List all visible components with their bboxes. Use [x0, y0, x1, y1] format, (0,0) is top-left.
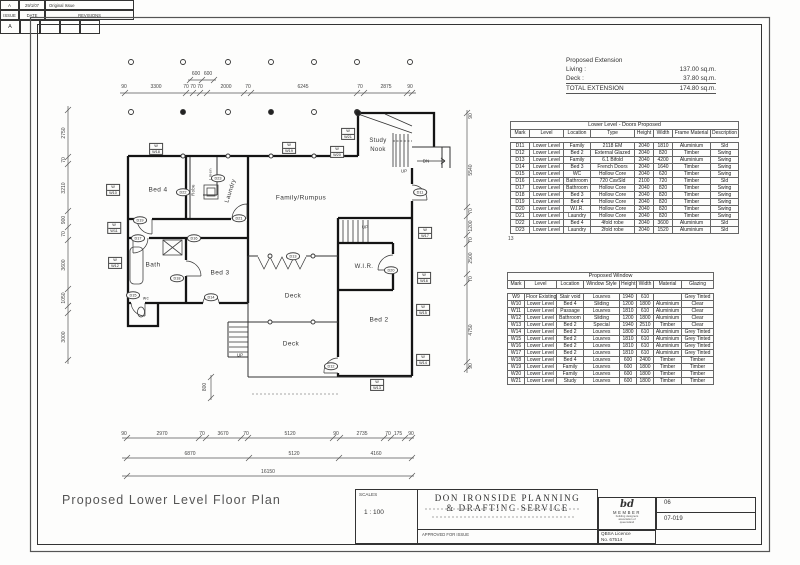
bda-logo-icon: bd: [599, 499, 655, 510]
plan-title: Proposed Lower Level Floor Plan: [62, 493, 281, 507]
table-row-cell: Hollow Core: [591, 192, 635, 199]
table-header-cell: Location: [557, 281, 584, 289]
table-row-cell: Timber: [654, 357, 682, 364]
table-row-cell: Louvres: [584, 294, 620, 301]
table-row-cell: WC: [564, 171, 591, 178]
table-row-cell: Swing: [711, 206, 739, 213]
table-row-cell: Passage: [557, 308, 584, 315]
table-row-cell: Lower Level: [530, 185, 564, 192]
room-label-study: Study: [369, 138, 386, 144]
door-count-note: 13: [508, 236, 514, 242]
table-row-cell: 1810: [654, 143, 673, 150]
table-row-cell: W12: [508, 315, 525, 322]
window-tag-id: W12: [109, 264, 121, 269]
qbsa-licence-box: QBSA Licence No. 67514: [598, 530, 656, 544]
table-row-cell: 1810: [620, 343, 637, 350]
table-row-cell: 2040: [635, 227, 654, 234]
extension-row-total: TOTAL EXTENSION 174.80 sq.m.: [566, 84, 716, 94]
table-header-cell: Height: [635, 130, 654, 138]
table-row-cell: Grey Tinted: [682, 294, 714, 301]
table-row-cell: Clear: [682, 301, 714, 308]
stair-direction-label: DN: [423, 159, 430, 164]
table-row-cell: Lower Level: [525, 336, 557, 343]
table-row-cell: 2400: [637, 357, 654, 364]
table-row-cell: Sld: [711, 220, 739, 227]
dimension-label: 3210: [61, 182, 67, 193]
table-row-cell: W10: [508, 301, 525, 308]
dimension-label: 70: [61, 231, 67, 237]
table-title-cell: Proposed Window: [508, 273, 714, 281]
dimension-label: 1200: [468, 220, 474, 231]
table-row: W21Lower LevelStudyLouvres6001800TimberT…: [508, 378, 714, 385]
dimension-label: 3000: [61, 331, 67, 342]
table-row-cell: Lower Level: [530, 171, 564, 178]
table-row-cell: Grey Tinted: [682, 336, 714, 343]
table-row: D19Lower LevelBed 4Hollow Core2040820Tim…: [511, 199, 739, 206]
room-label-family-rumpus: Family/Rumpus: [276, 195, 326, 202]
table-row: D17Lower LevelBathroomHollow Core2040820…: [511, 185, 739, 192]
table-row-cell: Louvres: [584, 329, 620, 336]
table-title: Proposed Window: [508, 273, 714, 281]
table-row-cell: Louvres: [584, 343, 620, 350]
table-row-cell: 3600: [654, 220, 673, 227]
door-tag-d15: D15: [126, 291, 140, 299]
table-row-cell: Timber: [682, 357, 714, 364]
table-row-cell: 820: [654, 206, 673, 213]
table-row-cell: 2040: [635, 164, 654, 171]
table-row: W17Lower LevelBed 2Louvres1810610Alumini…: [508, 350, 714, 357]
table-row-cell: Swing: [711, 171, 739, 178]
pencil-note: [432, 516, 576, 518]
dimension-label: 5120: [284, 431, 295, 437]
table-row-cell: D16: [511, 178, 530, 185]
scales-label: SCALES: [356, 490, 417, 497]
table-row-cell: 4200: [654, 157, 673, 164]
extension-value: 37.80 sq.m.: [683, 74, 716, 83]
extension-value: 137.00 sq.m.: [680, 65, 716, 74]
table-row-cell: W17: [508, 350, 525, 357]
dimension-label: 70: [468, 276, 474, 282]
door-tag-d12: D12: [324, 362, 338, 370]
table-row-cell: 6.1 Bifold: [591, 157, 635, 164]
table-row-cell: Family: [557, 371, 584, 378]
table-row-cell: Family: [564, 157, 591, 164]
table-row-cell: Bed 2: [557, 343, 584, 350]
table-row-cell: Bed 3: [564, 164, 591, 171]
table-row-cell: Louvres: [584, 364, 620, 371]
door-tag-d16: D16: [187, 234, 201, 242]
table-row: W19Lower LevelFamilyLouvres6001800Timber…: [508, 364, 714, 371]
room-label-w-i-r-: W.I.R.: [355, 264, 374, 270]
table-row-cell: 2040: [635, 150, 654, 157]
table-row-cell: Timber: [673, 185, 711, 192]
table-row-cell: Lower Level: [525, 357, 557, 364]
dimension-label: 70: [199, 431, 205, 437]
table-title-cell: Lower Level - Doors Proposed: [511, 122, 739, 130]
table-row-cell: Timber: [673, 178, 711, 185]
table-row-cell: Swing: [711, 213, 739, 220]
table-row-cell: Swing: [711, 192, 739, 199]
pencil-note: [425, 508, 581, 510]
window-tag-id: W10: [107, 191, 119, 196]
table-row-cell: Timber: [654, 378, 682, 385]
dimension-label: 900: [61, 216, 67, 224]
table-row-cell: 720: [654, 178, 673, 185]
table-row-cell: D11: [511, 143, 530, 150]
table-row: D14Lower LevelBed 3French Doors20401640T…: [511, 164, 739, 171]
table-row: D21Lower LevelLaundryHollow Core2040820T…: [511, 213, 739, 220]
table-row-cell: 2100: [635, 178, 654, 185]
table-row: D13Lower LevelFamily6.1 Bifold20404200Al…: [511, 157, 739, 164]
dimension-label: 600: [204, 71, 212, 77]
table-row-cell: 600: [620, 364, 637, 371]
extension-summary: Proposed Extension Living : 137.00 sq.m.…: [566, 56, 716, 94]
door-tag-d17: D17: [131, 234, 145, 242]
window-tag-id: W13: [371, 386, 383, 391]
table-row-cell: Louvres: [584, 308, 620, 315]
table-row-cell: 610: [637, 350, 654, 357]
table-row-cell: Bed 2: [557, 336, 584, 343]
table-row-cell: Louvres: [584, 371, 620, 378]
dimension-lines: [65, 77, 470, 479]
dimension-label: 3300: [150, 84, 161, 90]
table-row-cell: Timber: [673, 192, 711, 199]
table-header-cell: Window Style: [584, 281, 620, 289]
table-row-cell: Lower Level: [525, 322, 557, 329]
table-row: W12Lower LevelBathroomSliding12001800Alu…: [508, 315, 714, 322]
table-row-cell: 2510: [637, 322, 654, 329]
table-row-cell: Lower Level: [530, 227, 564, 234]
window-tag-w10: WW10: [106, 184, 120, 196]
table-row: W9Floor ExistingStair voidLouvres1940610…: [508, 294, 714, 301]
table-row-cell: Swing: [711, 150, 739, 157]
table-row-cell: Timber: [673, 206, 711, 213]
table-row-cell: Swing: [711, 164, 739, 171]
window-tag-w11: WW11: [107, 222, 121, 234]
table-row-cell: Lower Level: [530, 192, 564, 199]
table-row-cell: Bed 4: [557, 301, 584, 308]
extension-label: TOTAL EXTENSION: [566, 84, 624, 93]
doors-schedule-table: Lower Level - Doors ProposedMarkLevelLoc…: [510, 121, 739, 234]
window-tag-w14: WW14: [416, 354, 430, 366]
table-row-cell: D20: [511, 206, 530, 213]
table-row-cell: 2040: [635, 185, 654, 192]
table-row-cell: 610: [637, 343, 654, 350]
table-row-cell: Swing: [711, 199, 739, 206]
table-row-cell: Aluminium: [654, 343, 682, 350]
drawing-sheet: { "plan_title": "Proposed Lower Level Fl…: [0, 0, 800, 565]
table-row-cell: 1940: [620, 294, 637, 301]
table-row-cell: Laundry: [564, 213, 591, 220]
table-row-cell: Aluminium: [673, 227, 711, 234]
dimension-label: 70: [190, 84, 196, 90]
table-row-cell: Grey Tinted: [682, 350, 714, 357]
room-label-wc: wc: [143, 296, 149, 301]
dimension-label: 90: [333, 431, 339, 437]
table-row-cell: Lower Level: [525, 315, 557, 322]
table-row-cell: Laundry: [564, 227, 591, 234]
table-row-cell: Swing: [711, 157, 739, 164]
table-row-cell: Bed 2: [557, 322, 584, 329]
table-row-cell: D19: [511, 199, 530, 206]
table-row-cell: 610: [637, 329, 654, 336]
table-row-cell: Bathroom: [557, 315, 584, 322]
table-header-cell: Frame Material: [673, 130, 711, 138]
table-row-cell: W19: [508, 364, 525, 371]
table-header-cell: Description: [711, 130, 739, 138]
dimension-label: 70: [61, 157, 67, 163]
window-tag-id: W15: [417, 311, 429, 316]
table-row-cell: Study: [557, 378, 584, 385]
window-tag-w20: WW20: [330, 146, 344, 158]
table-row-cell: Hollow Core: [591, 213, 635, 220]
table-row-cell: Timber: [682, 378, 714, 385]
extension-value: 174.80 sq.m.: [680, 84, 716, 93]
table-row-cell: 600: [620, 378, 637, 385]
table-row: D12Lower LevelBed 2External Glazed204082…: [511, 150, 739, 157]
table-row-cell: D12: [511, 150, 530, 157]
dimension-label: 90: [121, 431, 127, 437]
dimension-label: 90: [407, 84, 413, 90]
table-row-cell: Lower Level: [525, 378, 557, 385]
dimension-label: 70: [468, 237, 474, 243]
table-header-cell: Location: [564, 130, 591, 138]
table-row-cell: Grey Tinted: [682, 329, 714, 336]
table-row: W10Lower LevelBed 4Sliding12001800Alumin…: [508, 301, 714, 308]
walls: [128, 113, 434, 376]
table-row-cell: Aluminium: [654, 308, 682, 315]
table-row-cell: 610: [637, 308, 654, 315]
table-row-cell: 2040: [635, 192, 654, 199]
table-row-cell: Family: [564, 143, 591, 150]
window-tag-w16: WW16: [417, 272, 431, 284]
table-row-cell: W21: [508, 378, 525, 385]
table-row-cell: 600: [620, 371, 637, 378]
table-row: W14Lower LevelBed 2Louvres1800610Alumini…: [508, 329, 714, 336]
table-row-cell: Timber: [654, 371, 682, 378]
table-row-cell: Bed 4: [564, 199, 591, 206]
dimension-label: 6245: [297, 84, 308, 90]
window-tag-id: W11: [108, 229, 120, 234]
table-row-cell: Aluminium: [654, 329, 682, 336]
table-row-cell: D13: [511, 157, 530, 164]
table-row-cell: Bed 2: [557, 350, 584, 357]
table-row-cell: Lower Level: [530, 164, 564, 171]
table-row-cell: Family: [557, 364, 584, 371]
table-row-cell: 1940: [620, 322, 637, 329]
dimension-label: 2735: [356, 431, 367, 437]
table-row-cell: Louvres: [584, 336, 620, 343]
dimension-label: 4160: [370, 451, 381, 457]
window-tag-w19: WW19: [282, 142, 296, 154]
member-sub3: queensland: [599, 521, 655, 524]
table-row-cell: 2118 EM: [591, 143, 635, 150]
table-row-cell: W9: [508, 294, 525, 301]
window-tag-id: W17: [419, 234, 431, 239]
table-row-cell: W14: [508, 329, 525, 336]
table-row-cell: 820: [654, 192, 673, 199]
table-row: W13Lower LevelBed 2Special19402510Timber…: [508, 322, 714, 329]
door-tag-d13: D13: [286, 252, 300, 260]
dimension-label: 70: [357, 84, 363, 90]
table-header-cell: Width: [637, 281, 654, 289]
table-header-cell: Type: [591, 130, 635, 138]
sheet-number-box: 06 07-019: [656, 497, 756, 530]
windows-schedule-table: Proposed WindowMarkLevelLocationWindow S…: [507, 272, 714, 385]
table-row-cell: Bed 3: [564, 192, 591, 199]
table-header-cell: Glazing: [682, 281, 714, 289]
table-row-cell: Timber: [673, 199, 711, 206]
table-row-cell: D21: [511, 213, 530, 220]
dimension-label: 4750: [468, 324, 474, 335]
table-row-cell: Lower Level: [525, 308, 557, 315]
table-row-cell: Timber: [673, 213, 711, 220]
extension-title: Proposed Extension: [566, 56, 622, 65]
table-row: W15Lower LevelBed 2Louvres1810610Alumini…: [508, 336, 714, 343]
table-row-cell: External Glazed: [591, 150, 635, 157]
dimension-label: 3670: [217, 431, 228, 437]
table-row-cell: Bathroom: [564, 185, 591, 192]
table-row-cell: Sliding: [584, 315, 620, 322]
table-row-cell: Clear: [682, 308, 714, 315]
table-header-cell: Level: [525, 281, 557, 289]
table-row-cell: 2040: [635, 157, 654, 164]
table-row-cell: Aluminium: [673, 143, 711, 150]
table-row-cell: Floor Existing: [525, 294, 557, 301]
table-row-cell: Swing: [711, 185, 739, 192]
table-row: D15Lower LevelWCHollow Core2040620Timber…: [511, 171, 739, 178]
bifold-screen-zigzag: [258, 257, 306, 269]
table-row-cell: W15: [508, 336, 525, 343]
extension-row-living: Living : 137.00 sq.m.: [566, 65, 716, 74]
table-row-cell: Lower Level: [530, 157, 564, 164]
table-row-cell: Lower Level: [525, 350, 557, 357]
dimension-label: 70: [197, 84, 203, 90]
table-row-cell: 820: [654, 185, 673, 192]
table-row-cell: 1800: [637, 364, 654, 371]
dimension-label: 90: [468, 363, 474, 369]
table-row-cell: Timber: [673, 171, 711, 178]
dimension-label: 2875: [380, 84, 391, 90]
window-tag-id: W14: [417, 361, 429, 366]
company-name-line1: DON IRONSIDE PLANNING: [418, 493, 597, 503]
dimension-label: 70: [468, 208, 474, 214]
table-header-cell: Mark: [508, 281, 525, 289]
approved-label: APPROVED FOR ISSUE: [418, 530, 597, 537]
dimension-label: 2970: [156, 431, 167, 437]
table-header-cell: Level: [530, 130, 564, 138]
table-row-cell: 720 CavSld: [591, 178, 635, 185]
dimension-label: 70: [183, 84, 189, 90]
table-row-cell: Aluminium: [654, 350, 682, 357]
dimension-label: 1050: [61, 292, 67, 303]
dimension-label: 90: [121, 84, 127, 90]
table-row-cell: Aluminium: [673, 157, 711, 164]
table-row-cell: W11: [508, 308, 525, 315]
extension-title-row: Proposed Extension: [566, 56, 716, 65]
table-row-cell: Louvres: [584, 357, 620, 364]
table-row-cell: Louvres: [584, 350, 620, 357]
table-row-cell: 2040: [635, 171, 654, 178]
dimension-label: 2500: [468, 252, 474, 263]
table-row-cell: W16: [508, 343, 525, 350]
table-row-cell: 620: [654, 171, 673, 178]
window-tag-id: W19: [283, 149, 295, 154]
table-row-cell: Bed 4: [564, 220, 591, 227]
table-row-cell: D18: [511, 192, 530, 199]
room-label-bath: Bath: [146, 262, 161, 269]
table-row-cell: Lower Level: [525, 329, 557, 336]
table-header-cell: Material: [654, 281, 682, 289]
table-row-cell: 2040: [635, 220, 654, 227]
dimension-label: 2750: [61, 127, 67, 138]
table-row-cell: Bed 2: [557, 329, 584, 336]
table-header: MarkLevelLocationWindow StyleHeightWidth…: [508, 281, 714, 289]
door-tag-d22: D22: [176, 188, 190, 196]
table-row-cell: 2040: [635, 213, 654, 220]
dimension-label: 70: [385, 431, 391, 437]
dimension-label: 2000: [220, 84, 231, 90]
dimension-label: 175: [394, 431, 402, 437]
window-tag-id: W16: [418, 279, 430, 284]
window-tag-w21: WW21: [341, 128, 355, 140]
table-row: W20Lower LevelFamilyLouvres6001800Timber…: [508, 371, 714, 378]
window-tag-id: W18: [150, 150, 162, 155]
room-label-robe: Robe: [191, 184, 196, 196]
table-row-cell: Lower Level: [530, 143, 564, 150]
table-row-cell: W13: [508, 322, 525, 329]
stair-direction-label: UP: [237, 353, 243, 358]
table-row-cell: 1810: [620, 350, 637, 357]
extension-label: Deck :: [566, 74, 584, 83]
dimension-label: 90: [408, 431, 414, 437]
dimension-label: 90: [468, 113, 474, 119]
table-row-cell: Lower Level: [525, 301, 557, 308]
table-row-cell: Timber: [654, 322, 682, 329]
table-row-cell: Lower Level: [530, 220, 564, 227]
room-label-bed-3: Bed 3: [211, 270, 230, 277]
table-row-cell: 820: [654, 213, 673, 220]
table-row-cell: 1520: [654, 227, 673, 234]
scale-value: 1 : 100: [364, 509, 417, 516]
table-row-cell: Lower Level: [530, 178, 564, 185]
dimension-label: 6870: [184, 451, 195, 457]
window-tag-w15: WW15: [416, 304, 430, 316]
table-row-cell: Sliding: [584, 301, 620, 308]
member-logo-box: bd MEMBER building designers association…: [598, 497, 656, 530]
table-row-cell: D15: [511, 171, 530, 178]
table-row-cell: W20: [508, 371, 525, 378]
table-row-cell: Sld: [711, 143, 739, 150]
door-tag-d18: D18: [170, 274, 184, 282]
room-label-deck: Deck: [285, 293, 301, 300]
dimension-label: 5120: [288, 451, 299, 457]
table-row-cell: 2040: [635, 206, 654, 213]
qbsa-line2: No. 67514: [599, 537, 655, 543]
dimension-label: 3600: [61, 259, 67, 270]
table-row-cell: Hollow Core: [591, 171, 635, 178]
paper-background: Bed 4RobeLinenLaundryFamily/RumpusStudyN…: [0, 0, 800, 565]
table-row-cell: Lower Level: [525, 364, 557, 371]
table-row: W11Lower LevelPassageLouvres1810610Alumi…: [508, 308, 714, 315]
table-header-cell: Width: [654, 130, 673, 138]
table-row-cell: Louvres: [584, 378, 620, 385]
table-row: D18Lower LevelBed 3Hollow Core2040820Tim…: [511, 192, 739, 199]
dimension-label: 5540: [468, 164, 474, 175]
table-row-cell: Special: [584, 322, 620, 329]
extension-row-deck: Deck : 37.80 sq.m.: [566, 74, 716, 84]
table-row-cell: Timber: [654, 364, 682, 371]
